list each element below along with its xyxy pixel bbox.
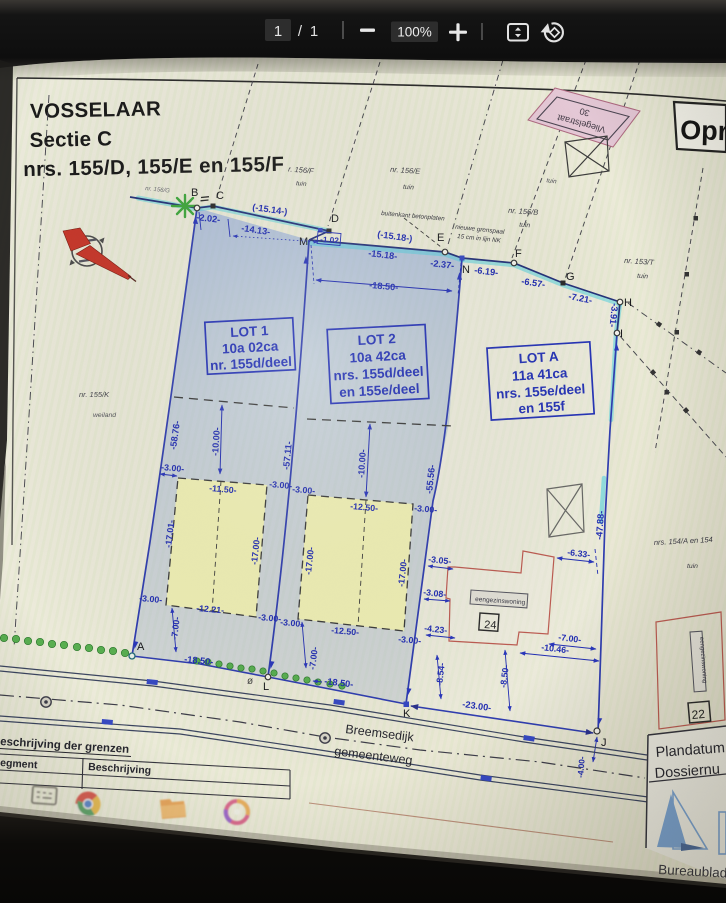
svg-text:1: 1	[274, 23, 282, 40]
svg-text:1: 1	[310, 23, 318, 40]
svg-text:100%: 100%	[397, 25, 432, 40]
